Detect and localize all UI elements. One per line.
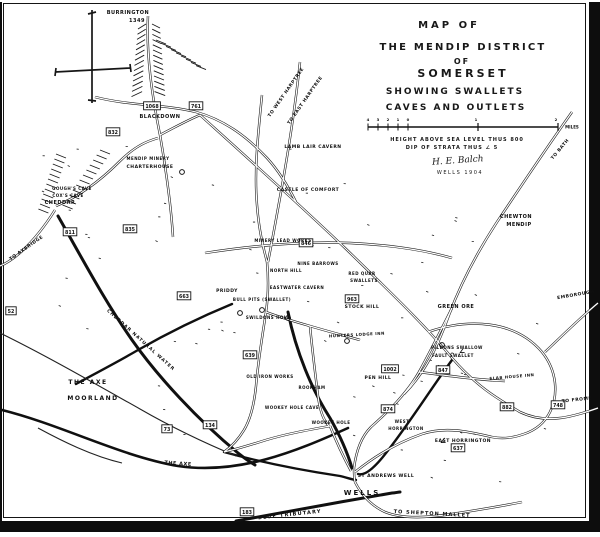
svg-text:639: 639 xyxy=(245,353,256,359)
map-label-st-andrews-well: ST ANDREWS WELL xyxy=(358,473,414,479)
elevation-box-811: 811 xyxy=(63,228,77,236)
map-label-minery-lead-works: MINERY LEAD WORKS xyxy=(254,238,311,243)
swallet-circle-icon xyxy=(345,339,350,344)
elevation-box-73: 73 xyxy=(162,425,172,433)
map-label-gough-s-cave: GOUGH'S CAVE xyxy=(52,186,92,191)
map-label-pildons-swallow: PILDONS SWALLOW xyxy=(431,345,483,350)
svg-text:874: 874 xyxy=(383,407,394,413)
elevation-box-52: 52 xyxy=(6,307,16,315)
svg-text:134: 134 xyxy=(205,423,216,429)
map-label-red-quar: RED QUAR xyxy=(348,271,375,276)
map-label-chewton: CHEWTON xyxy=(500,214,532,220)
swallet-circle-icon xyxy=(260,308,265,313)
map-label-hunters-lodge-inn: HUNTERS LODGE INN xyxy=(329,331,385,339)
roads-core-layer xyxy=(0,16,598,517)
map-label-slab-house-inn: SLAB HOUSE INN xyxy=(489,372,534,381)
map-label-wookey-hole-cave: WOOKEY HOLE CAVE xyxy=(265,405,319,410)
svg-text:811: 811 xyxy=(65,230,75,236)
svg-text:MILES: MILES xyxy=(565,125,579,130)
svg-text:183: 183 xyxy=(242,510,252,516)
map-labels: BURRINGTON1349BLACKDOWNMENDIP MINERYCHAR… xyxy=(8,10,595,521)
svg-text:761: 761 xyxy=(191,104,201,110)
svg-text:663: 663 xyxy=(179,294,189,300)
map-label-mendip: MENDIP xyxy=(506,222,531,228)
svg-text:4: 4 xyxy=(367,117,370,122)
svg-text:52: 52 xyxy=(8,309,15,315)
map-label-bull-pits-swallet: BULL PITS (SWALLET) xyxy=(233,297,291,302)
svg-text:2: 2 xyxy=(387,117,390,122)
svg-text:73: 73 xyxy=(164,427,171,433)
svg-text:0: 0 xyxy=(407,117,410,122)
svg-text:1068: 1068 xyxy=(145,104,159,110)
elevation-box-183: 183 xyxy=(240,508,254,516)
map-canvas: ∠∠ 1068832761811835663526397313418384696… xyxy=(0,0,600,537)
map-label-mendip-minery: MENDIP MINERY xyxy=(127,156,170,161)
map-label-rookham: ROOKHAM xyxy=(299,385,326,390)
elevation-box-637: 637 xyxy=(451,444,465,452)
map-label-east-horrington: EAST HORRINGTON xyxy=(435,438,491,444)
scale-bar: 4321012MILES xyxy=(367,117,579,131)
map-label-west: WEST xyxy=(395,419,410,424)
map-label-stock-hill: STOCK HILL xyxy=(345,304,380,310)
roads-layer xyxy=(0,16,598,517)
map-label-to-frome: TO FROME xyxy=(561,395,592,404)
map-label-green-ore: GREEN ORE xyxy=(438,304,475,310)
svg-text:847: 847 xyxy=(438,368,448,374)
svg-text:1: 1 xyxy=(397,117,400,122)
map-label-to-axbridge: TO AXBRIDGE xyxy=(8,234,44,262)
map-label-north-hill: NORTH HILL xyxy=(270,268,302,273)
map-label-pen-hill: PEN HILL xyxy=(365,375,392,381)
elevation-box-761: 761 xyxy=(189,102,203,110)
map-label-cheddar: CHEDDAR xyxy=(45,200,76,206)
map-label-cox-s-cave: COX'S CAVE xyxy=(52,193,83,198)
map-label-nine-barrows: NINE BARROWS xyxy=(297,261,338,266)
gorge-hatching xyxy=(38,24,206,213)
svg-text:832: 832 xyxy=(108,130,118,136)
map-label-charterhouse: CHARTERHOUSE xyxy=(127,164,174,170)
elevation-box-963: 963 xyxy=(345,295,359,303)
elevation-box-639: 639 xyxy=(243,351,257,359)
map-label-swildons-hole: SWILDONS HOLE xyxy=(246,315,290,320)
swallet-circle-icon xyxy=(238,311,243,316)
map-label-old-iron-works: OLD IRON WORKS xyxy=(246,374,293,379)
svg-text:637: 637 xyxy=(453,446,463,452)
elevation-box-663: 663 xyxy=(177,292,191,300)
elevation-box-847: 847 xyxy=(436,366,450,374)
map-label-castle-of-comfort: CASTLE OF COMFORT xyxy=(277,187,340,193)
swallet-circle-icon xyxy=(180,170,185,175)
north-cross-icon xyxy=(55,10,131,103)
svg-text:882: 882 xyxy=(502,405,512,411)
map-label-moorland: MOORLAND xyxy=(67,395,118,402)
map-label-1349: 1349 xyxy=(129,18,145,24)
svg-text:2: 2 xyxy=(555,117,558,122)
map-label-fault-swallet: FAULT SWALLET xyxy=(432,353,474,358)
elevation-box-1068: 1068 xyxy=(144,102,161,110)
map-label-wells: WELLS xyxy=(344,489,380,497)
map-label-emborough: EMBOROUGH xyxy=(557,289,595,301)
map-label-priddy: PRIDDY xyxy=(216,288,238,294)
map-label-horrington: HORRINGTON xyxy=(388,426,423,431)
svg-text:963: 963 xyxy=(347,297,357,303)
map-label-swallets: SWALLETS xyxy=(350,278,378,283)
svg-text:3: 3 xyxy=(377,117,380,122)
map-label-blackdown: BLACKDOWN xyxy=(139,114,180,120)
map-label-burrington: BURRINGTON xyxy=(107,10,149,16)
map-label-eastwater-cavern: EASTWATER CAVERN xyxy=(270,285,324,290)
svg-text:1002: 1002 xyxy=(383,367,396,373)
svg-text:1: 1 xyxy=(475,117,478,122)
elevation-box-835: 835 xyxy=(123,225,137,233)
map-label-lamb-lair-cavern: LAMB LAIR CAVERN xyxy=(284,144,341,150)
elevation-box-874: 874 xyxy=(381,405,395,413)
map-label-wookey-hole: WOOKEY HOLE xyxy=(312,420,351,425)
elevation-box-832: 832 xyxy=(106,128,120,136)
map-label-the-axe: THE AXE xyxy=(68,379,107,386)
svg-text:835: 835 xyxy=(125,227,135,233)
map-page: MAP OF THE MENDIP DISTRICT OF SOMERSET S… xyxy=(0,0,600,537)
elevation-box-134: 134 xyxy=(203,421,217,429)
elevation-box-1002: 1002 xyxy=(382,365,399,373)
map-label-the-axe: THE AXE xyxy=(164,460,192,468)
elevation-box-882: 882 xyxy=(500,403,514,411)
